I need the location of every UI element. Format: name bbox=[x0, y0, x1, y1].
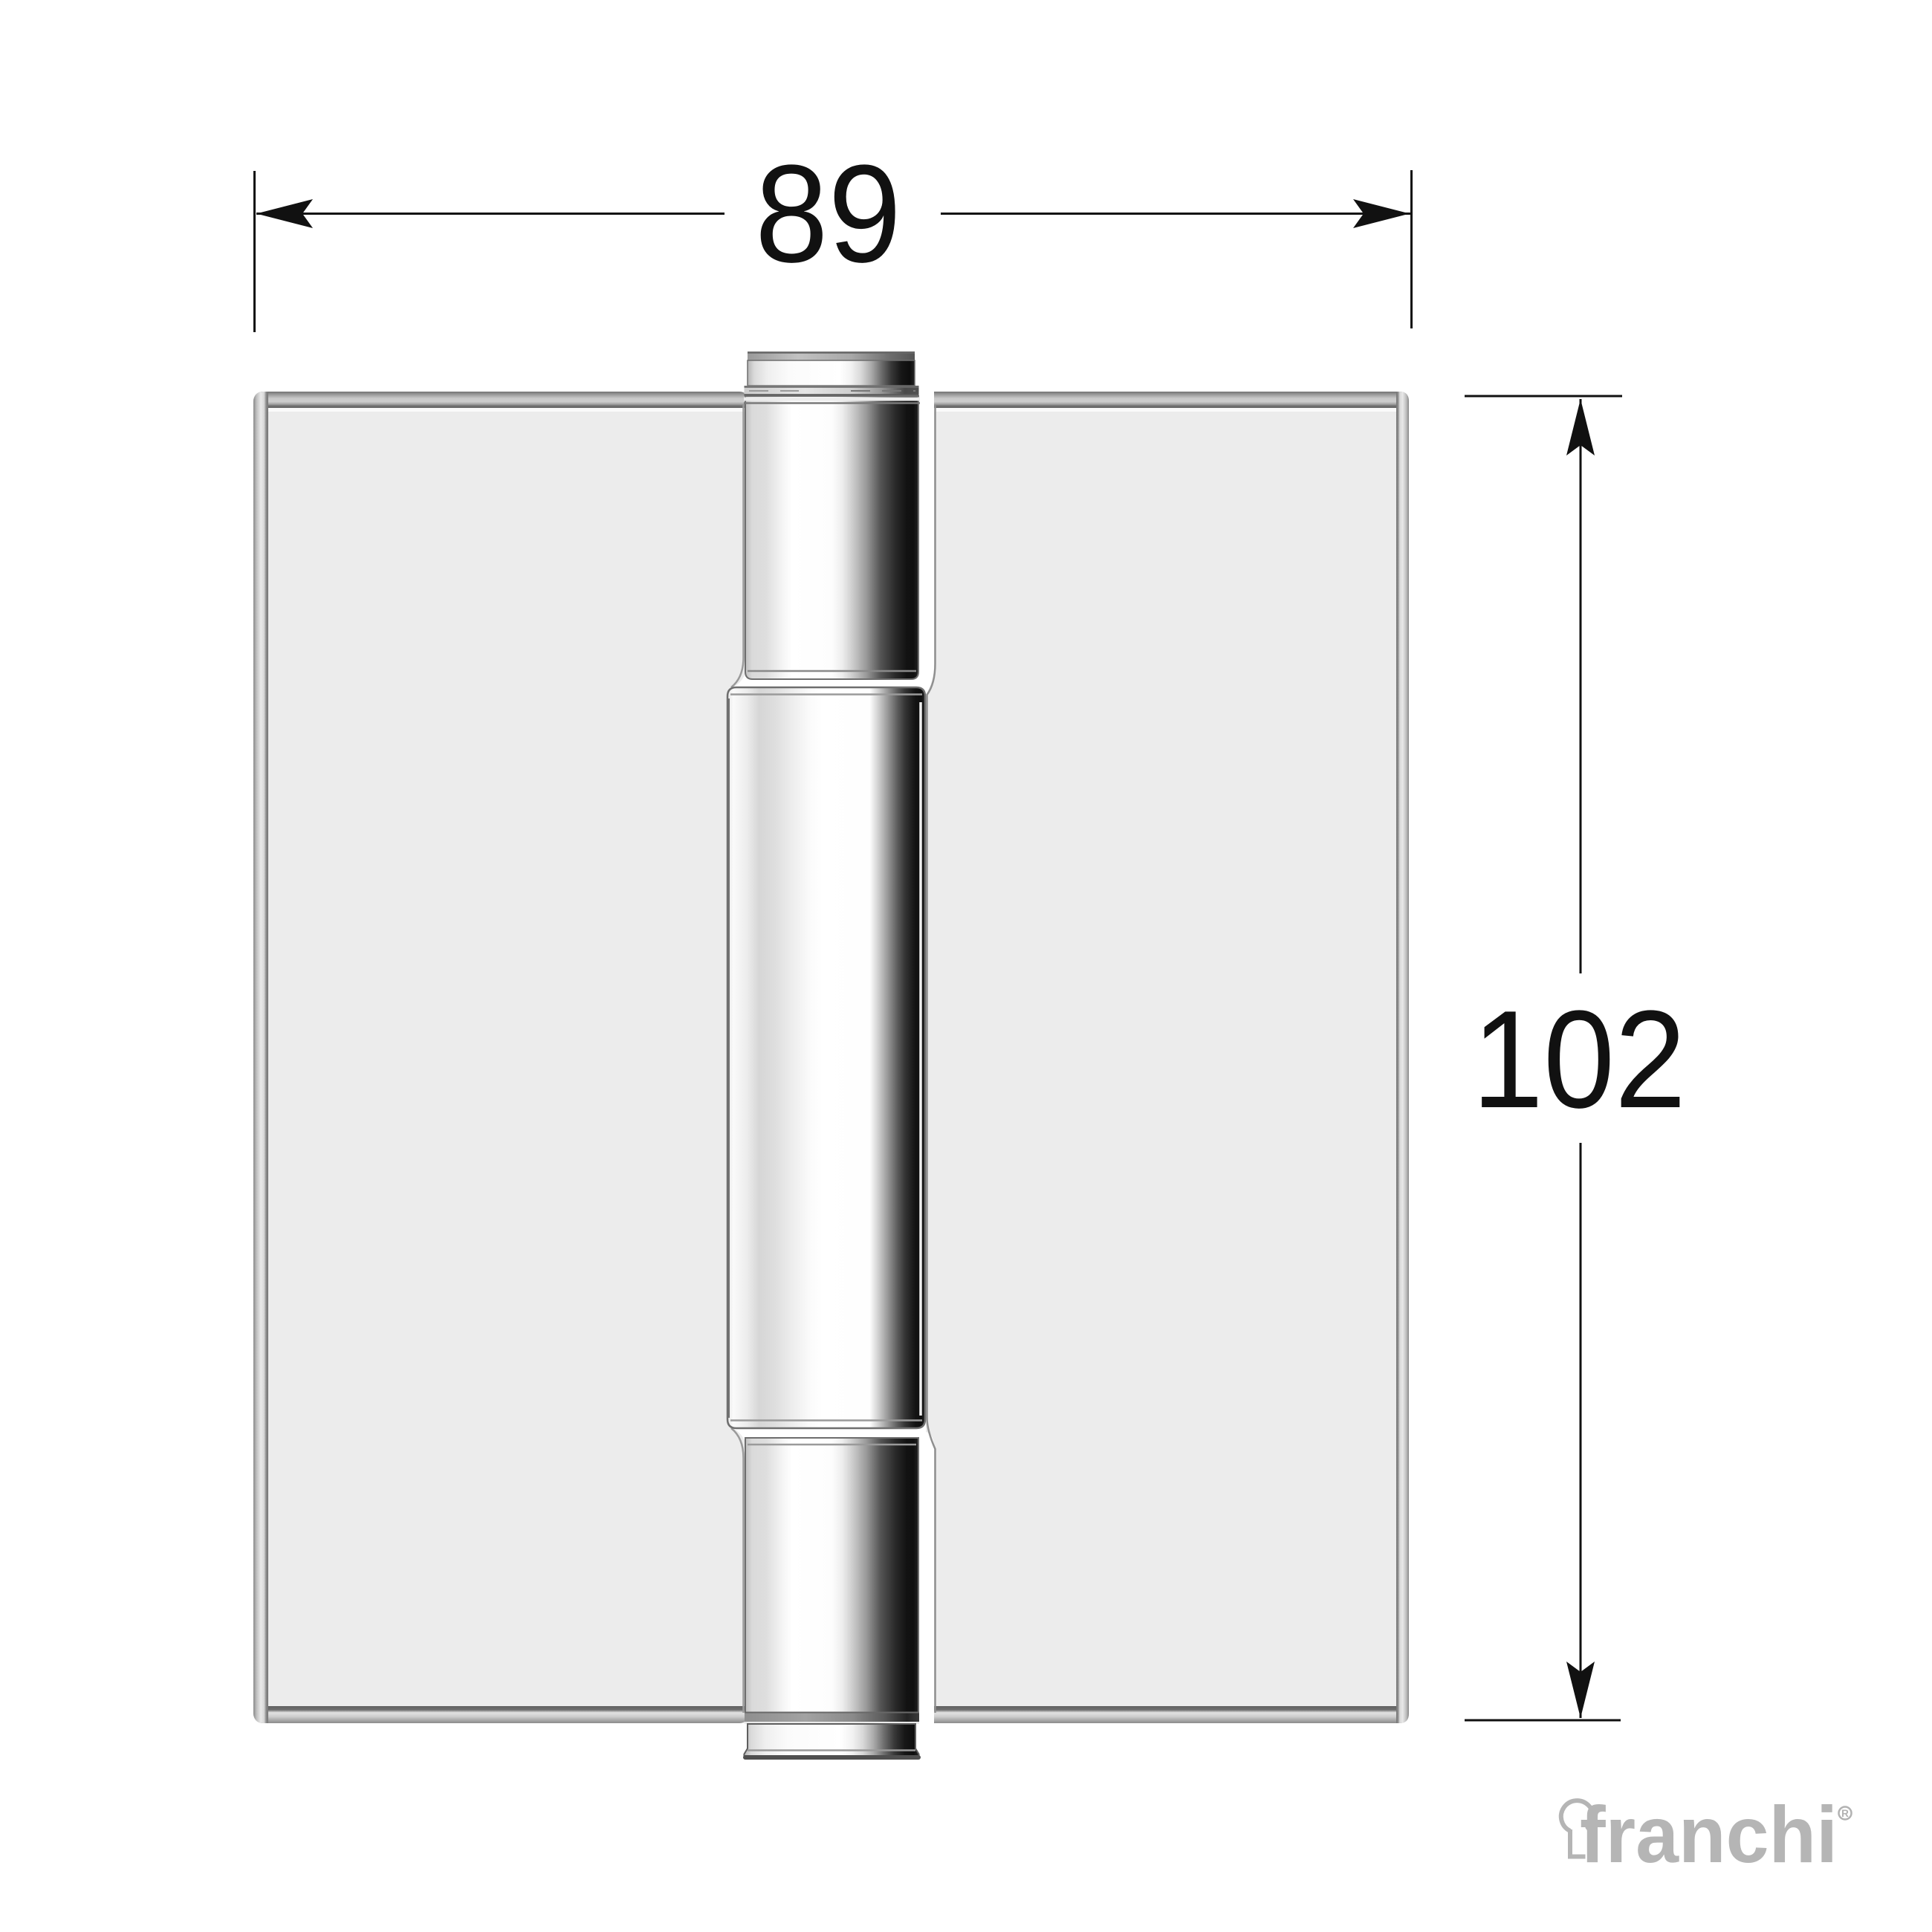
svg-text:102: 102 bbox=[1472, 982, 1686, 1137]
svg-text:R: R bbox=[1841, 1808, 1849, 1819]
svg-text:89: 89 bbox=[755, 136, 901, 291]
svg-text:franchi: franchi bbox=[1580, 1789, 1838, 1879]
